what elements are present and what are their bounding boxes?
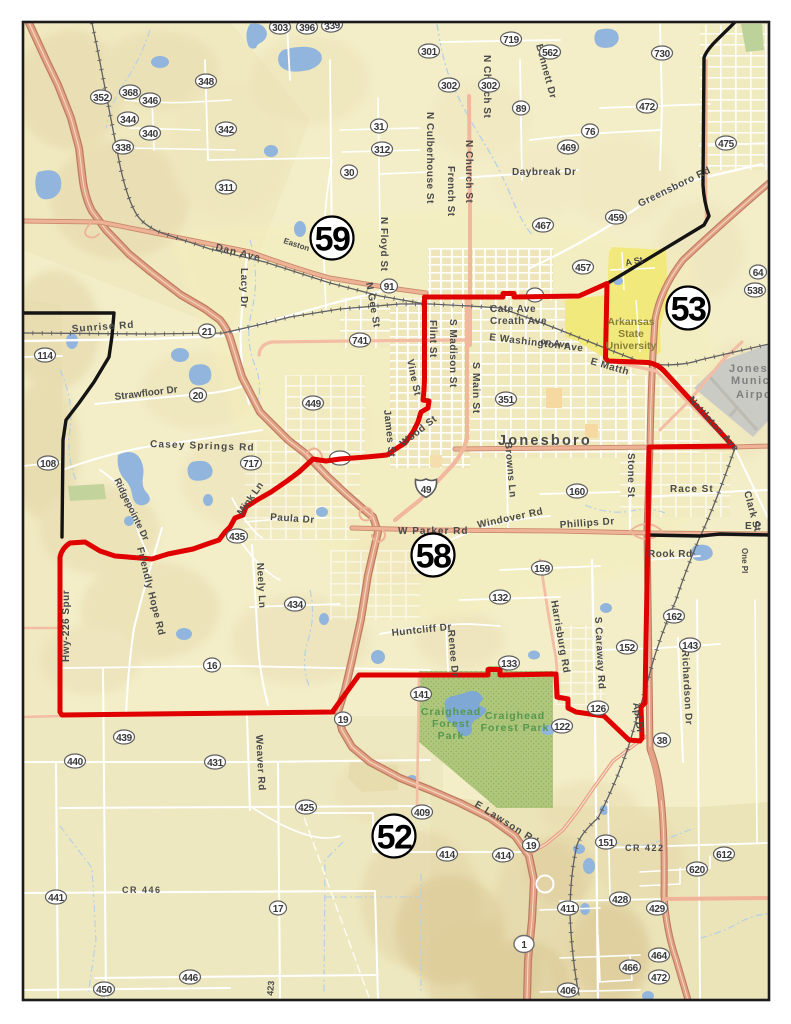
svg-text:612: 612 — [716, 850, 733, 861]
svg-text:CR 446: CR 446 — [122, 885, 162, 895]
svg-text:411: 411 — [560, 904, 576, 915]
svg-text:Forest: Forest — [432, 718, 470, 730]
svg-text:N Floyd St: N Floyd St — [378, 217, 389, 272]
svg-text:University: University — [606, 340, 657, 352]
svg-text:406: 406 — [560, 986, 577, 997]
svg-text:439: 439 — [116, 733, 133, 744]
svg-text:19: 19 — [338, 715, 349, 726]
svg-text:Flint St: Flint St — [427, 320, 438, 358]
svg-text:E P: E P — [745, 521, 761, 532]
svg-text:449: 449 — [305, 399, 322, 410]
svg-text:Park: Park — [438, 730, 465, 742]
svg-text:143: 143 — [682, 641, 699, 652]
svg-text:State: State — [618, 328, 644, 340]
svg-text:340: 340 — [142, 129, 159, 140]
svg-text:440: 440 — [67, 757, 84, 768]
svg-text:446: 446 — [182, 973, 199, 984]
svg-text:Daybreak Dr: Daybreak Dr — [512, 167, 576, 178]
svg-text:114: 114 — [37, 351, 53, 362]
svg-text:Cate Ave: Cate Ave — [490, 304, 536, 315]
svg-text:409: 409 — [414, 808, 431, 819]
svg-text:Craighead: Craighead — [485, 710, 545, 722]
svg-text:730: 730 — [654, 49, 671, 60]
svg-text:435: 435 — [229, 532, 246, 543]
svg-text:152: 152 — [619, 643, 636, 654]
svg-text:302: 302 — [481, 81, 498, 92]
svg-text:52: 52 — [377, 819, 412, 857]
svg-text:459: 459 — [608, 213, 625, 224]
svg-text:20: 20 — [193, 391, 204, 402]
svg-text:434: 434 — [287, 600, 304, 611]
svg-text:311: 311 — [218, 183, 234, 194]
svg-text:31: 31 — [374, 122, 385, 133]
svg-text:Forest Park: Forest Park — [481, 722, 550, 734]
svg-text:19: 19 — [526, 841, 537, 852]
svg-text:1: 1 — [521, 940, 527, 951]
svg-text:133: 133 — [501, 659, 518, 670]
svg-text:159: 159 — [534, 564, 551, 575]
svg-text:423: 423 — [265, 980, 276, 996]
svg-text:64: 64 — [753, 268, 764, 279]
svg-text:Hwy-226 Spur: Hwy-226 Spur — [61, 590, 72, 662]
svg-text:53: 53 — [671, 291, 706, 329]
svg-text:30: 30 — [344, 168, 355, 179]
svg-text:49: 49 — [421, 485, 432, 496]
svg-text:467: 467 — [535, 221, 552, 232]
svg-text:126: 126 — [590, 704, 607, 715]
svg-text:429: 429 — [649, 904, 666, 915]
svg-text:S Madison St: S Madison St — [447, 319, 458, 388]
svg-text:108: 108 — [40, 459, 57, 470]
svg-text:457: 457 — [575, 263, 592, 274]
svg-text:450: 450 — [96, 985, 113, 996]
svg-text:475: 475 — [718, 139, 735, 150]
svg-text:160: 160 — [569, 487, 586, 498]
svg-text:N Culberhouse St: N Culberhouse St — [424, 112, 435, 204]
svg-text:122: 122 — [554, 722, 571, 733]
svg-text:N Church St: N Church St — [463, 140, 474, 203]
svg-text:428: 428 — [612, 895, 629, 906]
svg-text:431: 431 — [207, 758, 224, 769]
svg-text:21: 21 — [202, 327, 213, 338]
svg-text:312: 312 — [374, 145, 391, 156]
svg-text:Rook Rd: Rook Rd — [648, 549, 693, 560]
svg-text:348: 348 — [198, 77, 215, 88]
svg-text:162: 162 — [666, 612, 683, 623]
svg-text:741: 741 — [352, 336, 369, 347]
svg-text:396: 396 — [299, 23, 316, 34]
svg-text:538: 538 — [747, 286, 764, 297]
svg-text:620: 620 — [689, 865, 706, 876]
svg-text:414: 414 — [439, 850, 456, 861]
svg-text:58: 58 — [416, 538, 451, 576]
svg-text:344: 344 — [120, 115, 137, 126]
svg-text:French St: French St — [445, 166, 456, 217]
svg-text:466: 466 — [622, 963, 639, 974]
svg-text:352: 352 — [93, 93, 110, 104]
svg-text:351: 351 — [498, 395, 515, 406]
svg-text:425: 425 — [298, 803, 315, 814]
svg-text:38: 38 — [657, 736, 668, 747]
svg-text:91: 91 — [384, 282, 395, 293]
svg-text:342: 342 — [218, 125, 235, 136]
svg-text:717: 717 — [243, 459, 260, 470]
svg-text:414: 414 — [495, 851, 512, 862]
svg-text:141: 141 — [413, 690, 430, 701]
svg-text:Craighead: Craighead — [421, 706, 481, 718]
svg-text:One Pl: One Pl — [740, 548, 749, 573]
svg-text:472: 472 — [651, 973, 668, 984]
svg-text:719: 719 — [503, 35, 520, 46]
svg-text:132: 132 — [492, 593, 509, 604]
svg-text:472: 472 — [639, 102, 656, 113]
svg-text:469: 469 — [560, 143, 577, 154]
svg-text:Lacy Dr: Lacy Dr — [238, 268, 249, 308]
svg-text:368: 368 — [122, 88, 139, 99]
svg-text:151: 151 — [598, 838, 615, 849]
svg-text:346: 346 — [142, 96, 159, 107]
svg-text:338: 338 — [115, 143, 132, 154]
svg-text:Stone St: Stone St — [625, 453, 636, 498]
svg-text:59: 59 — [315, 221, 350, 259]
svg-text:89: 89 — [516, 104, 527, 115]
svg-text:Race St: Race St — [670, 484, 714, 495]
svg-text:17: 17 — [273, 904, 284, 915]
svg-text:441: 441 — [48, 893, 65, 904]
svg-text:Creath Ave: Creath Ave — [490, 316, 547, 327]
svg-text:Arkansas: Arkansas — [607, 316, 654, 328]
svg-text:CR 422: CR 422 — [625, 843, 665, 853]
svg-text:S Main St: S Main St — [470, 362, 482, 414]
svg-text:302: 302 — [441, 81, 458, 92]
svg-text:301: 301 — [421, 47, 438, 58]
svg-text:303: 303 — [272, 23, 289, 34]
svg-text:76: 76 — [585, 127, 596, 138]
svg-text:562: 562 — [542, 48, 559, 59]
svg-text:464: 464 — [651, 951, 668, 962]
svg-text:16: 16 — [207, 661, 218, 672]
